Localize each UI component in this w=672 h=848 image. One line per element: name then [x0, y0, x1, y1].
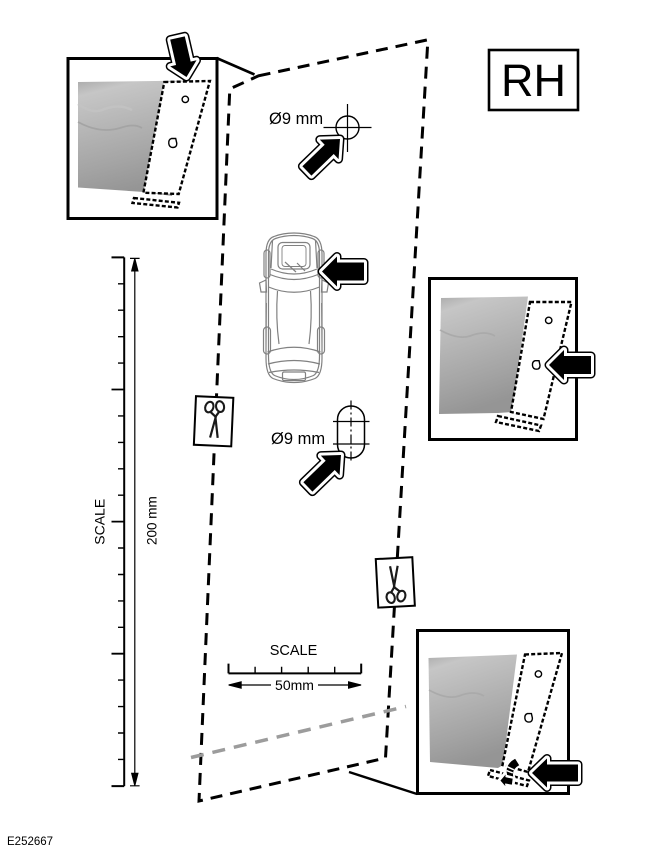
svg-text:RH: RH	[501, 55, 566, 106]
svg-text:200 mm: 200 mm	[145, 496, 160, 545]
svg-text:SCALE: SCALE	[92, 499, 108, 545]
svg-text:Ø9 mm: Ø9 mm	[271, 430, 325, 448]
svg-text:E252667: E252667	[7, 836, 53, 848]
svg-text:SCALE: SCALE	[270, 643, 318, 659]
svg-text:50mm: 50mm	[275, 677, 314, 693]
svg-text:Ø9 mm: Ø9 mm	[269, 110, 323, 128]
